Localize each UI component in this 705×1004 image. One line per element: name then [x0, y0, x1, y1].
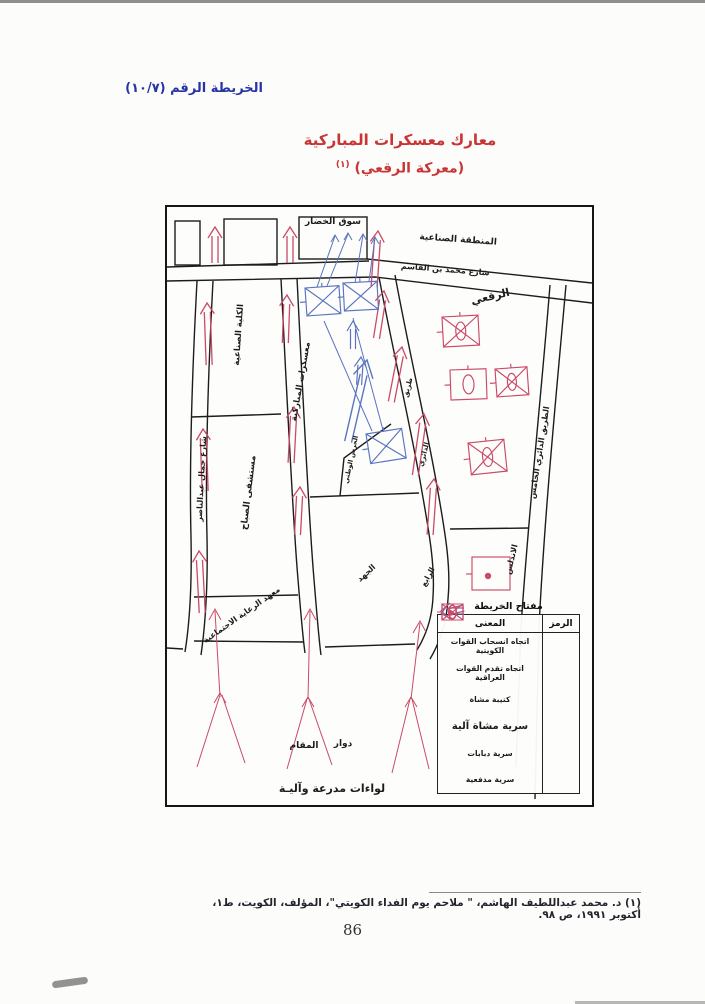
label-industrial-zone: المنطقة الصناعية [419, 232, 497, 247]
battle-map: سوق الخضار المنطقة الصناعية شارع محمد بن… [165, 205, 594, 807]
label-sabah-hospital: مستشفى الصباح [239, 455, 258, 531]
footnote-separator [429, 892, 641, 893]
scanned-book-page: الخريطة الرقم (١٠/٧) معارك معسكرات المبا… [0, 0, 705, 1004]
legend-row: سرية مشاة آلية [438, 713, 579, 740]
footnote-marker: (١) [336, 160, 350, 170]
kuwaiti-infantry-battalion-symbol [299, 282, 341, 317]
label-maqam: المقام [290, 741, 319, 751]
infantry-battalion-icon [542, 686, 579, 713]
iraqi-advance-arrows [192, 227, 441, 613]
kuwaiti-infantry-battalion-symbol [337, 277, 379, 311]
label-mubarakiya-camps: معسكرات المباركية [289, 341, 313, 422]
legend-meaning: سرية مشاة آلية [438, 713, 542, 740]
label-social-care-institute: معهد الرعاية الاجتماعية [201, 585, 281, 645]
page-title: معارك معسكرات المباركية [240, 131, 560, 149]
label-roundabout: دوار [333, 739, 353, 749]
legend-row: سرية مدفعية [438, 766, 579, 793]
scan-edge-top [0, 0, 705, 3]
label-industrial-college: الكلية الصناعية [232, 304, 246, 366]
label-juhd: الجهد [355, 562, 377, 583]
mechanized-infantry-company-icon [542, 713, 579, 740]
scan-smudge [52, 977, 89, 989]
map-legend: مفتاح الخريطة الرمز المعنى اتجاه انسحاب … [437, 601, 580, 794]
legend-row: اتجاه تقدم القوات العراقية [438, 660, 579, 687]
page-number: 86 [0, 921, 705, 939]
label-qasim-street: شارع محمد بن القاسم [401, 262, 490, 278]
map-number-heading: الخريطة الرقم (١٠/٧) [93, 81, 263, 96]
iraqi-mechanized-company-symbol [489, 363, 529, 398]
footnote-text: (١) د. محمد عبداللطيف الهاشم، " ملاحم يو… [181, 897, 641, 921]
legend-meaning: اتجاه تقدم القوات العراقية [438, 660, 542, 687]
tank-company-icon [542, 740, 579, 767]
page-subtitle: (معركة الرقعي) (١) [240, 160, 560, 177]
label-national-guard: الحرس الوطني [342, 435, 360, 484]
legend-row: اتجاه انسحاب القوات الكويتية [438, 633, 579, 660]
artillery-company-icon [542, 766, 579, 793]
iraqi-mechanized-company-symbol [462, 435, 508, 475]
legend-meaning: سرية مدفعية [438, 766, 542, 793]
red-advance-arrow-icon [542, 660, 579, 687]
label-souq-market: سوق الخضار [304, 217, 361, 227]
label-road-word: طريق [402, 376, 415, 398]
iraqi-mechanized-company-symbol [436, 311, 480, 347]
legend-box: الرمز المعنى اتجاه انسحاب القوات الكويتي… [437, 614, 580, 794]
legend-row: كتيبة مشاة [438, 686, 579, 713]
legend-meaning: كتيبة مشاة [438, 686, 542, 713]
label-andalus: الاندلس [504, 543, 521, 575]
label-ring-word: الدائري [417, 441, 431, 467]
legend-col-symbol: الرمز [542, 615, 579, 632]
legend-row: سرية دبابات [438, 740, 579, 767]
subtitle-text: (معركة الرقعي) [355, 161, 465, 177]
iraqi-tank-company-symbol [444, 365, 487, 400]
legend-meaning: سرية دبابات [438, 740, 542, 767]
legend-meaning: اتجاه انسحاب القوات الكويتية [438, 633, 542, 660]
label-armored-brigades: لواءات مدرعة وآليـة [279, 781, 385, 795]
blue-withdraw-arrow-icon [542, 633, 579, 660]
